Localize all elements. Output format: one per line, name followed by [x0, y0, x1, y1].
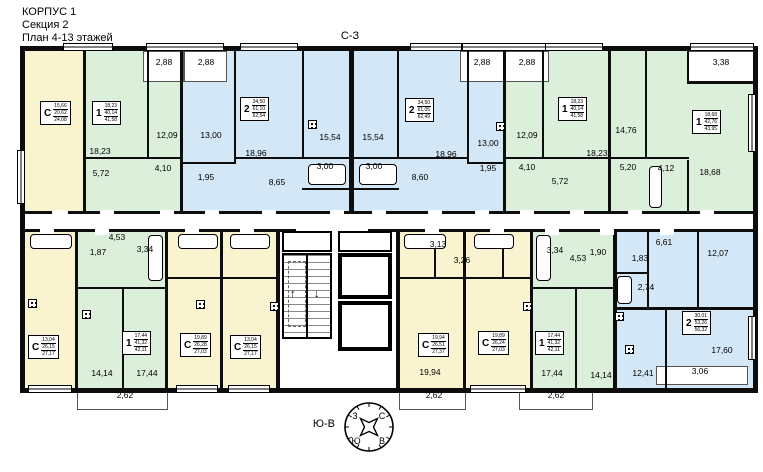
vent-grid-icon — [270, 302, 279, 311]
apartment-type-letter: 1 — [536, 338, 547, 349]
door-opening — [52, 210, 68, 217]
door-opening — [428, 210, 442, 217]
wall-segment — [575, 287, 577, 388]
apartment-area-value: 26,51 — [431, 342, 446, 349]
room-area-label: 2,62 — [539, 390, 573, 400]
room-area-label: 6,61 — [647, 237, 681, 247]
apartment-area-value: 53,26 — [694, 320, 709, 327]
door-opening — [700, 210, 714, 217]
room-area-label: 3,13 — [421, 239, 455, 249]
apartment-area-value: 34,50 — [417, 100, 432, 107]
wall-segment — [83, 46, 86, 214]
wall-segment — [613, 307, 755, 310]
wall-segment — [234, 46, 236, 164]
apartment-type-letter: С — [231, 342, 243, 353]
wall-segment — [220, 229, 223, 393]
wall-segment — [75, 229, 78, 393]
room-area-label: 18,23 — [580, 148, 614, 158]
room-area-label: 2,88 — [147, 57, 181, 67]
apartment-area-value: 26,24 — [491, 340, 506, 347]
apartment-area-value: 26,15 — [41, 344, 56, 351]
apartment-stamp-С: С13,0426,1527,17 — [230, 335, 261, 359]
window — [17, 150, 25, 204]
vent-grid-icon — [82, 310, 91, 319]
wall-segment — [687, 160, 689, 214]
apartment-area-value: 41,58 — [570, 113, 585, 119]
room-area-label: 17,60 — [705, 345, 739, 355]
window — [228, 385, 270, 393]
room-area-label: 14,76 — [609, 125, 643, 135]
apartment-area-value: 13,04 — [243, 337, 258, 344]
bathtub — [30, 234, 72, 249]
apartment-stamp-1: 118,2340,1441,58 — [92, 101, 121, 125]
window — [690, 43, 754, 51]
vent-grid-icon — [615, 312, 624, 321]
apartment-areas: 19,9426,5127,37 — [431, 334, 448, 356]
staircase: ↑ ↓ — [282, 253, 332, 339]
apartment-stamp-2: 234,5061,0562,49 — [405, 98, 434, 122]
room-area-label: 5,72 — [543, 176, 577, 186]
room-area-label: 2,62 — [108, 390, 142, 400]
apartment-type-letter: С — [419, 340, 431, 351]
window — [545, 43, 603, 51]
window — [176, 385, 218, 393]
apartment-stamp-1: 118,2340,1441,58 — [558, 97, 587, 121]
door-opening — [570, 210, 584, 217]
door-opening — [475, 210, 489, 217]
window — [748, 316, 756, 360]
vent-grid-icon — [28, 299, 37, 308]
vent-grid-icon — [496, 122, 505, 131]
apartment-areas: 34,5061,1062,54 — [252, 98, 269, 120]
apartment-type-letter: 1 — [93, 108, 104, 119]
window — [410, 43, 462, 51]
apartment-area-value: 40,14 — [104, 110, 119, 117]
room-area-label: 15,54 — [313, 132, 347, 142]
bathtub — [474, 234, 514, 249]
room-area-label: 5,72 — [84, 168, 118, 178]
room-area-label: 12,09 — [150, 130, 184, 140]
apartment-type-letter: 2 — [406, 105, 417, 116]
room-area-label: 2,88 — [465, 57, 499, 67]
wall-segment — [20, 211, 758, 214]
title-section: Секция 2 — [22, 19, 68, 32]
apartment-type-letter: С — [479, 338, 491, 349]
apartment-areas: 19,8926,2427,03 — [491, 332, 508, 354]
apartment-area-value: 56,32 — [694, 327, 709, 333]
apartment-stamp-С: С19,9426,5127,37 — [418, 333, 449, 357]
room-area-label: 3,00 — [308, 161, 342, 171]
room-area-label: 8,60 — [403, 172, 437, 182]
wall-segment — [645, 46, 647, 159]
vent-grid-icon — [523, 302, 532, 311]
service-shaft — [338, 231, 392, 252]
room-area-label: 1,83 — [623, 253, 657, 263]
compass-letter-sw: Ю — [351, 436, 360, 446]
apartment-stamp-С: С13,0426,1527,17 — [28, 335, 59, 359]
door-opening — [520, 210, 534, 217]
apartment-area-value: 62,49 — [417, 114, 432, 120]
wall-segment — [463, 229, 466, 393]
wall-segment — [20, 46, 25, 393]
apartment-area-value: 26,28 — [193, 342, 208, 349]
apartment-type-letter: С — [29, 342, 41, 353]
apartment-areas: 18,6842,7643,95 — [704, 111, 721, 133]
window — [470, 385, 526, 393]
apartment-area-value: 42,11 — [547, 347, 562, 353]
room-area-label: 4,53 — [100, 232, 134, 242]
apartment-area-value: 17,44 — [547, 333, 562, 340]
window — [462, 43, 548, 51]
apartment-type-letter: 2 — [241, 104, 252, 115]
wall-segment — [613, 272, 649, 274]
apartment-area-studio — [167, 232, 222, 388]
apartment-area-value: 41,32 — [547, 340, 562, 347]
door-opening — [262, 210, 276, 217]
apartment-area-value: 13,04 — [41, 337, 56, 344]
apartment-area-studio — [23, 232, 77, 388]
apartment-area-value: 27,37 — [431, 349, 446, 355]
apartment-areas: 30,0153,2656,32 — [694, 312, 711, 334]
apartment-area-value: 26,15 — [243, 344, 258, 351]
room-area-label: 19,94 — [413, 367, 447, 377]
stair-up-arrow: ↑ — [290, 289, 296, 300]
orientation-label-nw: С-З — [328, 30, 372, 42]
door-opening — [628, 210, 642, 217]
vent-grid-icon — [308, 120, 317, 129]
wall-segment — [165, 229, 168, 393]
apartment-area-value: 27,17 — [41, 351, 56, 357]
apartment-areas: 17,4441,3242,11 — [547, 332, 564, 354]
title-building: КОРПУС 1 — [22, 6, 76, 19]
wall-segment — [530, 287, 615, 289]
apartment-area-value: 18,23 — [570, 99, 585, 106]
apartment-areas: 18,2340,1441,58 — [104, 102, 121, 124]
floor-plan-page: КОРПУС 1 Секция 2 План 4-13 этажей С-З 2… — [0, 0, 763, 472]
room-area-label: 3,34 — [128, 244, 162, 254]
vent-grid-icon — [196, 300, 205, 309]
apartment-stamp-С: С19,8926,2827,03 — [180, 333, 211, 357]
door-opening — [545, 228, 559, 235]
apartment-area-value: 34,50 — [252, 99, 267, 106]
apartment-type-letter: 2 — [683, 318, 694, 329]
room-area-label: 18,96 — [429, 149, 463, 159]
room-area-label: 13,00 — [194, 130, 228, 140]
room-area-label: 1,95 — [471, 163, 505, 173]
door-opening — [660, 228, 674, 235]
window — [240, 43, 298, 51]
wall-segment — [687, 81, 757, 84]
bathtub — [230, 234, 270, 249]
wall-segment — [354, 188, 399, 190]
apartment-area-value: 27,03 — [491, 347, 506, 353]
room-area-label: 4,10 — [510, 162, 544, 172]
orientation-label-se: Ю-В — [293, 418, 335, 430]
apartment-type-letter: С — [41, 108, 53, 119]
apartment-stamp-1: 118,6842,7643,95 — [692, 110, 721, 134]
apartment-stamp-2: 230,0153,2656,32 — [682, 311, 711, 335]
apartment-area-studio — [23, 51, 85, 213]
apartment-stamp-С: С19,8926,2427,03 — [478, 331, 509, 355]
apartment-area-value: 20,62 — [53, 110, 68, 117]
apartment-type-letter: 1 — [693, 117, 704, 128]
door-opening — [372, 210, 386, 217]
apartment-area-value: 19,94 — [431, 335, 446, 342]
wall-segment — [687, 46, 689, 83]
apartment-areas: 17,4441,3242,11 — [134, 332, 151, 354]
title-floors: План 4-13 этажей — [22, 32, 113, 45]
apartment-areas: 34,5061,0562,49 — [417, 99, 434, 121]
wall-segment — [180, 162, 236, 164]
wall-segment — [83, 157, 182, 159]
room-area-label: 4,12 — [649, 163, 683, 173]
room-area-label: 4,10 — [146, 163, 180, 173]
apartment-area-value: 18,68 — [704, 112, 719, 119]
wall-segment — [665, 307, 667, 390]
stair-down-arrow: ↓ — [314, 289, 320, 300]
room-area-label: 18,68 — [693, 167, 727, 177]
wall-segment — [697, 229, 699, 309]
apartment-areas: 13,0426,1527,17 — [243, 336, 260, 358]
wall-segment — [276, 229, 280, 393]
room-area-label: 3,06 — [683, 366, 717, 376]
apartment-stamp-С: С15,6620,6224,08 — [40, 101, 71, 125]
door-opening — [330, 210, 344, 217]
door-opening — [100, 210, 114, 217]
door-opening — [160, 210, 174, 217]
window — [146, 43, 224, 51]
room-area-label: 18,96 — [239, 148, 273, 158]
room-area-label: 1,87 — [81, 247, 115, 257]
window — [28, 385, 72, 393]
wall-segment — [398, 277, 532, 279]
room-area-label: 2,74 — [629, 282, 663, 292]
wall-segment — [302, 46, 304, 159]
wall-segment — [397, 46, 399, 159]
stair-divider — [306, 255, 308, 337]
door-opening — [205, 210, 219, 217]
apartment-type-letter: 1 — [559, 104, 570, 115]
room-area-label: 14,14 — [85, 368, 119, 378]
apartment-area-value: 27,17 — [243, 351, 258, 357]
stair-vestibule — [282, 231, 332, 252]
room-area-label: 3,00 — [357, 161, 391, 171]
apartment-area-value: 62,54 — [252, 113, 267, 119]
room-area-label: 1,90 — [581, 247, 615, 257]
room-area-label: 17,44 — [130, 368, 164, 378]
apartment-area-value: 42,11 — [134, 347, 149, 353]
apartment-areas: 18,2340,1441,58 — [570, 98, 587, 120]
apartment-areas: 13,0426,1527,17 — [41, 336, 58, 358]
room-area-label: 12,09 — [510, 130, 544, 140]
apartment-area-value: 41,58 — [104, 117, 119, 123]
wall-segment — [530, 229, 533, 393]
wall-segment — [165, 277, 222, 279]
apartment-area-value: 19,89 — [491, 333, 506, 340]
apartment-area-value: 40,14 — [570, 106, 585, 113]
compass-letter-ne: С — [379, 411, 386, 421]
apartment-area-value: 24,08 — [53, 117, 68, 123]
apartment-area-value: 17,44 — [134, 333, 149, 340]
room-area-label: 12,41 — [626, 368, 660, 378]
room-area-label: 2,62 — [417, 390, 451, 400]
wall-segment — [75, 287, 167, 289]
wall-segment — [396, 229, 400, 393]
room-area-label: 18,23 — [83, 146, 117, 156]
room-area-label: 5,20 — [611, 162, 645, 172]
apartment-type-letter: 1 — [123, 338, 134, 349]
compass-rose: З С Ю В — [340, 398, 398, 456]
apartment-area-value: 41,32 — [134, 340, 149, 347]
apartment-stamp-1: 117,4441,3242,11 — [535, 331, 564, 355]
apartment-area-value: 43,95 — [704, 126, 719, 132]
wall-segment — [302, 188, 351, 190]
apartment-area-value: 19,89 — [193, 335, 208, 342]
wall-segment — [220, 277, 278, 279]
room-area-label: 17,44 — [535, 368, 569, 378]
window — [748, 94, 756, 152]
elevator-shaft-1 — [338, 253, 392, 299]
apartment-area-value: 42,76 — [704, 119, 719, 126]
vent-grid-icon — [625, 345, 634, 354]
apartment-area-value: 27,03 — [193, 349, 208, 355]
apartment-stamp-2: 234,5061,1062,54 — [240, 97, 269, 121]
apartment-areas: 15,6620,6224,08 — [53, 102, 70, 124]
bathtub — [148, 235, 163, 281]
apartment-stamp-1: 117,4441,3242,11 — [122, 331, 151, 355]
apartment-areas: 19,8926,2827,03 — [193, 334, 210, 356]
room-area-label: 14,14 — [584, 370, 618, 380]
elevator-shaft-2 — [338, 301, 392, 351]
room-area-label: 3,38 — [704, 57, 738, 67]
apartment-area-value: 18,23 — [104, 103, 119, 110]
wall-segment — [20, 46, 758, 51]
bathtub — [178, 234, 218, 249]
apartment-area-value: 61,10 — [252, 106, 267, 113]
room-area-label: 13,00 — [471, 138, 505, 148]
compass-letter-se: В — [379, 436, 385, 446]
apartment-area-value: 61,05 — [417, 107, 432, 114]
room-area-label: 2,88 — [510, 57, 544, 67]
door-opening — [600, 228, 614, 235]
room-area-label: 3,26 — [445, 255, 479, 265]
compass-letter-nw: З — [352, 411, 357, 421]
room-area-label: 15,54 — [356, 132, 390, 142]
room-area-label: 1,95 — [189, 172, 223, 182]
apartment-area-value: 15,66 — [53, 103, 68, 110]
room-area-label: 2,88 — [189, 57, 223, 67]
room-area-label: 8,65 — [260, 177, 294, 187]
apartment-type-letter: С — [181, 340, 193, 351]
bathtub — [536, 235, 551, 281]
wall-segment — [608, 157, 689, 159]
apartment-area-value: 30,01 — [694, 313, 709, 320]
room-area-label: 12,07 — [701, 248, 735, 258]
